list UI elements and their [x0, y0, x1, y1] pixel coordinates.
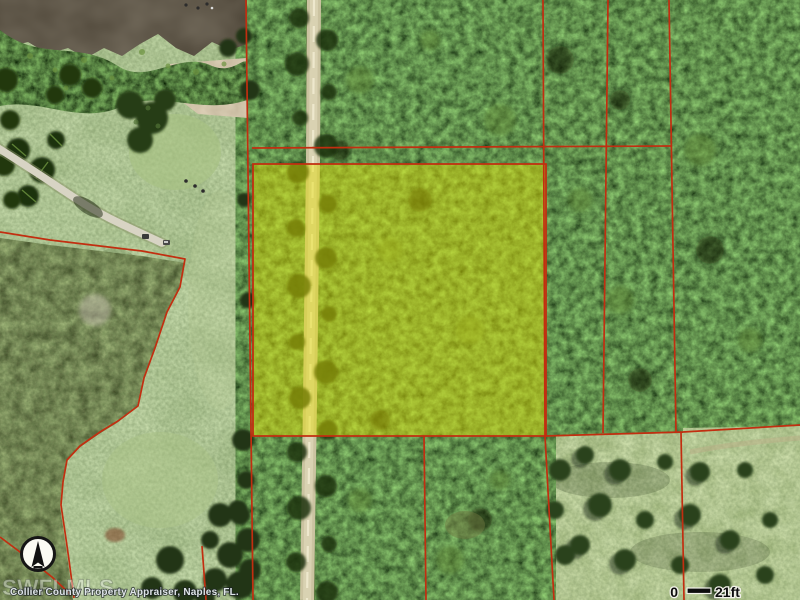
attribution-text: Collier County Property Appraiser, Naple… — [10, 587, 239, 598]
grass-field — [546, 420, 800, 600]
scale-bar-segment — [687, 588, 711, 594]
scale-end-label: 21ft — [715, 584, 740, 600]
scale-start-label: 0 — [670, 584, 678, 600]
highlighted-parcel[interactable] — [253, 164, 546, 436]
aerial-parcel-map[interactable]: SWFLMLS Collier County Property Appraise… — [0, 0, 800, 600]
north-arrow-icon — [22, 538, 55, 571]
